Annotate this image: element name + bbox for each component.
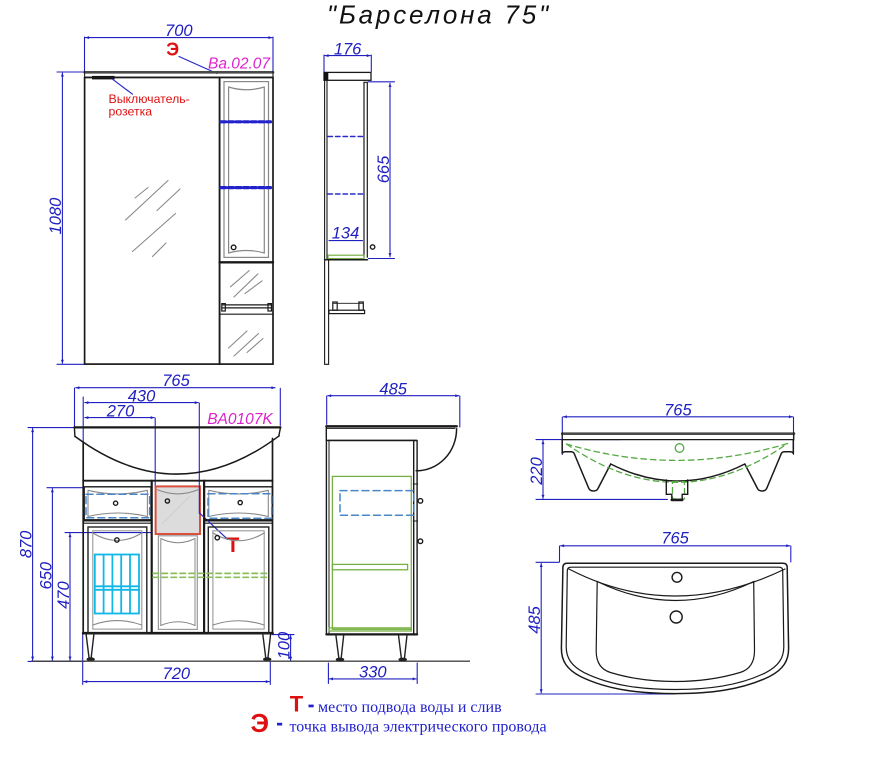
svg-text:розетка: розетка [109, 105, 153, 119]
svg-text:870: 870 [17, 530, 35, 558]
svg-text:BA0107K: BA0107K [207, 411, 273, 428]
svg-text:765: 765 [162, 372, 190, 390]
svg-text:1080: 1080 [47, 197, 65, 235]
svg-text:700: 700 [165, 22, 193, 40]
svg-text:Ba.02.07: Ba.02.07 [208, 56, 271, 73]
svg-text:270: 270 [106, 403, 135, 421]
svg-text:650: 650 [37, 561, 55, 589]
svg-text:134: 134 [332, 225, 360, 243]
svg-text:"Барселона 75": "Барселона 75" [327, 0, 551, 29]
svg-text:485: 485 [526, 605, 544, 633]
svg-text:Т: Т [290, 692, 304, 717]
svg-text:470: 470 [55, 581, 73, 609]
svg-text:765: 765 [664, 402, 692, 420]
svg-text:720: 720 [163, 665, 191, 683]
svg-text:665: 665 [375, 155, 393, 183]
svg-text:220: 220 [528, 456, 546, 485]
svg-text:100: 100 [275, 631, 293, 659]
svg-text:330: 330 [359, 663, 387, 681]
svg-text:765: 765 [661, 530, 689, 548]
svg-text:Т: Т [226, 534, 239, 557]
svg-text:Э: Э [251, 708, 270, 738]
svg-text:485: 485 [379, 380, 407, 398]
svg-text:Э: Э [166, 40, 179, 60]
svg-text:176: 176 [334, 40, 362, 58]
svg-text:место подвода воды и слив: место подвода воды и слив [318, 699, 502, 716]
svg-text:точка вывода электрического пр: точка вывода электрического провода [290, 718, 547, 735]
